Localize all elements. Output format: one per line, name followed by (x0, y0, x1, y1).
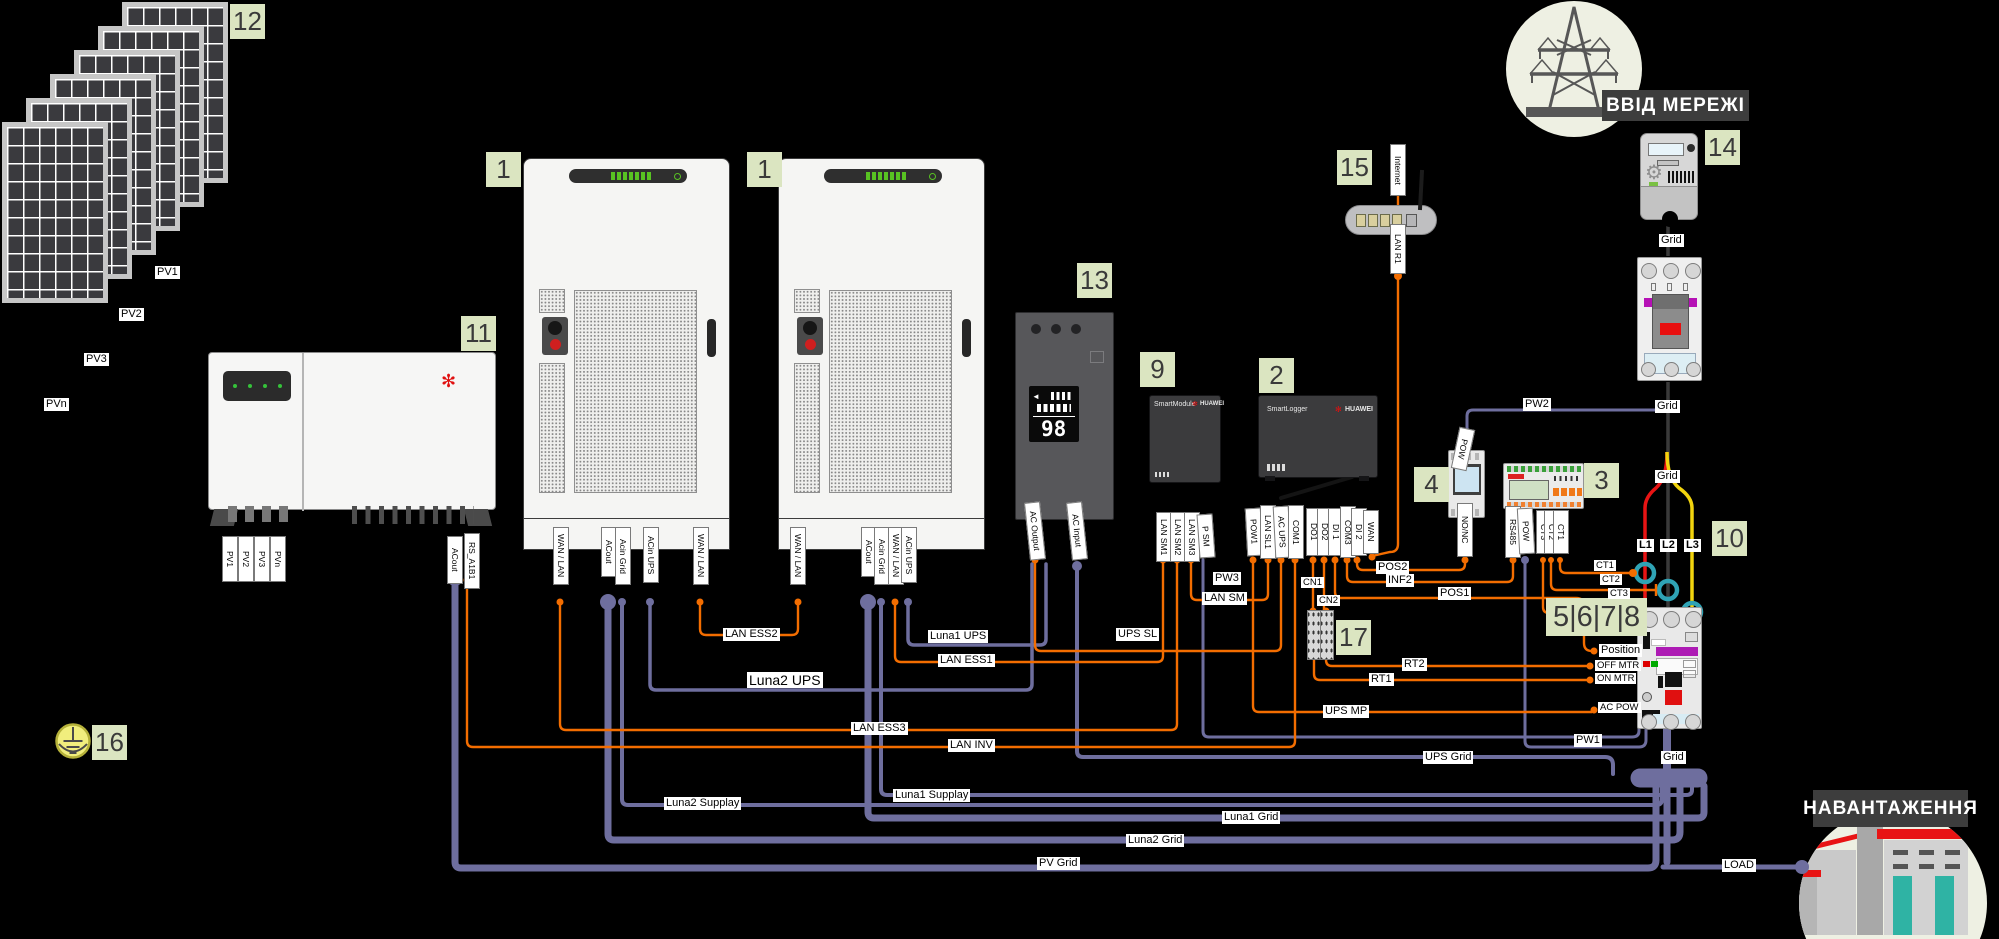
wire-label-luna2-supplay: Luna2 Supplay (664, 797, 741, 810)
wire-label-rt1: RT1 (1369, 673, 1394, 686)
connector-flag-p-sm: P SM (1196, 513, 1215, 558)
wire-label-pv2: PV2 (119, 308, 144, 321)
connector-flag-ac-output: AC Output (1024, 501, 1046, 560)
wire-label-grid: Grid (1655, 400, 1680, 413)
labels-overlay: 12111113921543141017165|6|7|8PV1PV2PV3PV… (0, 0, 1999, 939)
badge-9: 9 (1140, 352, 1175, 387)
wire-label-rt2: RT2 (1402, 658, 1427, 671)
wire-label-ups-grid: UPS Grid (1423, 751, 1473, 764)
badge-14: 14 (1705, 130, 1740, 165)
badge-13: 13 (1077, 263, 1112, 298)
connector-flag-lan-r1: LAN R1 (1390, 224, 1406, 274)
wire-label-pvn: PVn (44, 398, 69, 411)
wire-label-luna1-ups: Luna1 UPS (928, 630, 988, 643)
wire-label-ct1: CT1 (1594, 560, 1616, 571)
wire-label-grid: Grid (1655, 470, 1680, 483)
connector-flag-wan-lan: WAN / LAN (790, 527, 806, 585)
wire-label-ct2: CT2 (1600, 574, 1622, 585)
connector-flag-acin-ups: ACin UPS (901, 527, 917, 583)
connector-flag-wan-lan: WAN / LAN (553, 527, 569, 585)
wire-label-pw3: PW3 (1213, 572, 1241, 585)
wire-label-lan-inv: LAN INV (948, 739, 995, 752)
badge-12: 12 (230, 4, 265, 39)
wire-label-pos2: POS2 (1376, 561, 1409, 574)
connector-flag-internet: Internet (1390, 144, 1406, 196)
badge-10: 10 (1712, 521, 1747, 556)
wire-label-position: Position (1599, 644, 1642, 657)
badge-5-6-7-8: 5|6|7|8 (1546, 598, 1647, 636)
connector-flag-pow: POW (1451, 427, 1475, 471)
wire-label-on-mtr: ON MTR (1595, 673, 1636, 684)
wire-label-pw2: PW2 (1523, 398, 1551, 411)
wire-label-cn2: CN2 (1317, 595, 1340, 606)
connector-flag-ct1: CT1 (1553, 510, 1569, 554)
connector-flag-pv1: PV1 (222, 536, 238, 582)
badge-1: 1 (747, 152, 782, 187)
wire-label-luna1-grid: Luna1 Grid (1222, 811, 1280, 824)
badge-2: 2 (1259, 358, 1294, 393)
wire-label-ct3: CT3 (1608, 588, 1630, 599)
connector-flag-wan: WAN (1363, 510, 1379, 554)
connector-flag-rs-a1b1: RS_A1B1 (464, 533, 480, 589)
connector-flag-ac-input: AC Input (1066, 501, 1088, 560)
badge-11: 11 (461, 316, 496, 351)
wire-label-cn1: CN1 (1301, 577, 1324, 588)
connector-flag-pv3: PV3 (254, 536, 270, 582)
badge-15: 15 (1337, 150, 1372, 185)
wire-label-lan-ess3: LAN ESS3 (851, 722, 908, 735)
wire-label-luna2-grid: Luna2 Grid (1126, 834, 1184, 847)
wire-label-pw1: PW1 (1574, 734, 1602, 747)
connector-flag-acout: ACout (447, 536, 463, 584)
wire-label-pv3: PV3 (84, 353, 109, 366)
wire-label-pv-grid: PV Grid (1037, 857, 1080, 870)
connector-flag-wan-lan: WAN / LAN (693, 527, 709, 585)
wire-label-lan-sm: LAN SM (1202, 592, 1247, 605)
wire-label-luna2-ups: Luna2 UPS (747, 672, 823, 688)
wire-label-grid: Grid (1659, 234, 1684, 247)
badge-16: 16 (92, 725, 127, 760)
wire-label-load: LOAD (1722, 859, 1756, 872)
connector-flag-pow: POW (1517, 508, 1535, 555)
wire-label-ups-mp: UPS MP (1323, 705, 1369, 718)
wire-label-l1: L1 (1637, 539, 1654, 552)
connector-flag-pvn: PVn (270, 536, 286, 582)
wire-label-off-mtr: OFF MTR (1595, 660, 1641, 671)
connector-flag-acin-grid: Acin Grid (615, 527, 631, 585)
wire-label-lan-ess1: LAN ESS1 (938, 654, 995, 667)
connector-flag-pv2: PV2 (238, 536, 254, 582)
wire-label-lan-ess2: LAN ESS2 (723, 628, 780, 641)
wire-label-luna1-supplay: Luna1 Supplay (893, 789, 970, 802)
wire-label-l2: L2 (1660, 539, 1677, 552)
wire-label-ups-sl: UPS SL (1116, 628, 1159, 641)
connector-flag-acin-ups: ACin UPS (643, 527, 659, 583)
connector-flag-no-nc: NO/NC (1457, 503, 1473, 557)
wire-label-ac-pow: AC POW (1598, 702, 1641, 713)
badge-17: 17 (1336, 620, 1371, 655)
wire-label-grid: Grid (1661, 751, 1686, 764)
badge-4: 4 (1414, 467, 1449, 502)
wire-label-l3: L3 (1684, 539, 1701, 552)
badge-1: 1 (486, 152, 521, 187)
connector-flag-com1: COM1 (1288, 505, 1304, 559)
wire-label-inf2: INF2 (1386, 574, 1414, 587)
wire-label-pv1: PV1 (155, 266, 180, 279)
wire-label-pos1: POS1 (1438, 587, 1471, 600)
badge-3: 3 (1584, 463, 1619, 498)
